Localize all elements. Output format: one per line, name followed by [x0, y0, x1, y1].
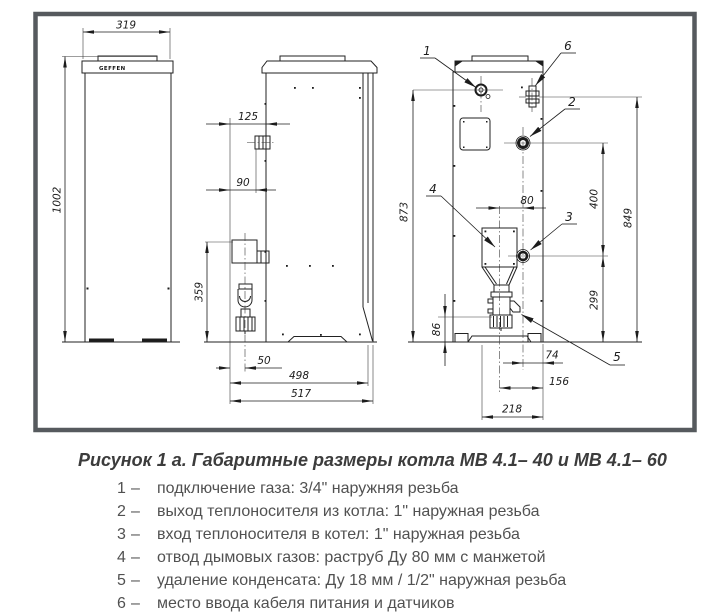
- side-top-cap: [262, 61, 377, 73]
- dim-rear-flue-offset: 80: [520, 195, 534, 207]
- dim-side-depth-total: 517: [291, 388, 311, 400]
- rear-body: [453, 72, 543, 342]
- rear-top-cap: [455, 61, 543, 72]
- callout-6-leader: [536, 53, 562, 86]
- legend-item-5: 5–удаление конденсата: Ду 18 мм / 1/2" н…: [0, 569, 724, 592]
- drawing-frame: [36, 14, 695, 430]
- front-foot-left: [89, 339, 114, 343]
- legend-num: 2: [117, 500, 131, 523]
- gas-connection: [413, 76, 503, 112]
- figure-caption: Рисунок 1 а. Габаритные размеры котла МВ…: [78, 450, 667, 471]
- legend-item-3: 3–вход теплоносителя в котел: 1" наружна…: [0, 523, 724, 546]
- legend-text: выход теплоносителя из котла: 1" наружна…: [157, 503, 539, 520]
- dim-rear-drain-offset: 74: [545, 350, 558, 362]
- legend-num: 3: [117, 523, 131, 546]
- legend-text: подключение газа: 3/4" наружняя резьба: [157, 480, 459, 497]
- callout-1-label: 1: [423, 44, 431, 58]
- legend-num: 5: [117, 569, 131, 592]
- front-view: GEFFEN 319 1002: [52, 20, 181, 343]
- dim-rear-gland-height: 849: [623, 208, 635, 228]
- dim-rear-gas-to-edge: 218: [502, 404, 522, 416]
- dim-side-flue-height: 359: [194, 282, 206, 302]
- rear-foot-left: [455, 334, 468, 343]
- callout-3-leader: [531, 224, 563, 250]
- callout-2-label: 2: [568, 95, 576, 109]
- dim-side-pipe-depth: 90: [236, 177, 250, 189]
- dim-side-trap-depth: 50: [257, 355, 271, 367]
- legend-text: отвод дымовых газов: раструб Ду 80 мм с …: [157, 549, 546, 566]
- callout-4-leader: [441, 196, 495, 247]
- callout-2-leader: [530, 109, 565, 137]
- dim-front-width: 319: [116, 20, 136, 32]
- front-body: [85, 73, 171, 342]
- rear-top-step: [472, 56, 528, 61]
- dim-rear-supply-return-gap: 400: [589, 189, 601, 209]
- dim-rear-return-height: 299: [589, 290, 601, 310]
- legend-text: вход теплоносителя в котел: 1" наружная …: [157, 526, 520, 543]
- callout-3-label: 3: [565, 210, 573, 224]
- dim-rear-drain-height: 86: [431, 323, 443, 337]
- dim-rear-gas-height: 873: [399, 202, 411, 222]
- condensate-spout: [510, 301, 520, 312]
- legend-item-1: 1–подключение газа: 3/4" наружняя резьба: [0, 477, 724, 500]
- supply-connection: [504, 127, 608, 370]
- callout-6-label: 6: [564, 39, 572, 53]
- legend-dash: –: [131, 500, 157, 523]
- boiler-dimension-drawing: .o{stroke:#222;stroke-width:1;fill:none;…: [0, 0, 724, 440]
- rear-view: 873 849 400 299 80 86 74 156 218: [399, 39, 643, 420]
- legend-dash: –: [131, 569, 157, 592]
- dim-side-depth-inner: 498: [289, 370, 309, 382]
- return-connection: [508, 250, 608, 263]
- dim-front-height: 1002: [52, 186, 64, 213]
- callout-5-label: 5: [613, 350, 621, 364]
- legend-item-4: 4–отвод дымовых газов: раструб Ду 80 мм …: [0, 546, 724, 569]
- side-gas-fitting: [247, 136, 274, 193]
- side-bottom-edge: [266, 337, 373, 343]
- dim-side-gas-depth: 125: [238, 111, 258, 123]
- legend-num: 6: [117, 592, 131, 615]
- front-foot-right: [142, 339, 167, 343]
- figure-legend: 1–подключение газа: 3/4" наружняя резьба…: [0, 477, 724, 615]
- legend-num: 4: [117, 546, 131, 569]
- side-top-step: [280, 56, 345, 61]
- rear-hatch: [460, 118, 490, 150]
- front-top-cap: [82, 61, 173, 73]
- side-view: 125 90 359 50 498 517: [194, 56, 378, 404]
- legend-text: удаление конденсата: Ду 18 мм / 1/2" нар…: [157, 572, 566, 589]
- side-flue-and-trap: [232, 233, 269, 372]
- legend-dash: –: [131, 477, 157, 500]
- dim-rear-flue-to-edge: 156: [549, 376, 569, 388]
- legend-item-2: 2–выход теплоносителя из котла: 1" наруж…: [0, 500, 724, 523]
- callout-4-label: 4: [429, 182, 437, 196]
- legend-text: место ввода кабеля питания и датчиков: [157, 595, 454, 612]
- legend-dash: –: [131, 523, 157, 546]
- brand-logo: GEFFEN: [99, 66, 126, 72]
- callout-5-leader: [522, 315, 611, 366]
- flue-and-trap: [438, 206, 520, 392]
- legend-dash: –: [131, 546, 157, 569]
- legend-item-6: 6–место ввода кабеля питания и датчиков: [0, 592, 724, 615]
- legend-dash: –: [131, 592, 157, 615]
- legend-num: 1: [117, 477, 131, 500]
- figure-page: .o{stroke:#222;stroke-width:1;fill:none;…: [0, 0, 724, 615]
